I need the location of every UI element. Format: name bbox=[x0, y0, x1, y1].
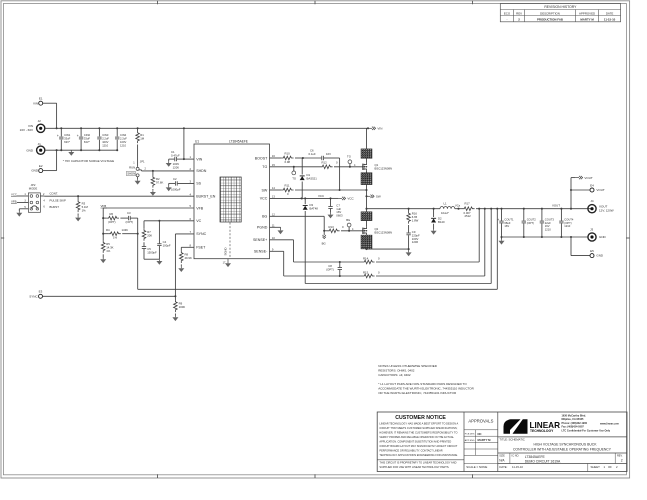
svg-text:100V: 100V bbox=[102, 140, 108, 144]
svg-text:MARTY M: MARTY M bbox=[478, 438, 492, 442]
svg-text:BSC123N08N: BSC123N08N bbox=[375, 231, 393, 235]
svg-text:E3: E3 bbox=[39, 289, 43, 293]
svg-text:14: 14 bbox=[272, 186, 275, 190]
svg-text:DATE:: DATE: bbox=[499, 465, 507, 469]
svg-text:J1: J1 bbox=[38, 142, 42, 146]
svg-text:16V - 60V: 16V - 60V bbox=[20, 128, 33, 132]
svg-text:BAT48: BAT48 bbox=[310, 206, 319, 210]
svg-text:PCB DES: PCB DES bbox=[465, 434, 475, 436]
svg-text:VCC: VCC bbox=[347, 197, 354, 201]
svg-text:R10: R10 bbox=[285, 152, 291, 156]
svg-text:13: 13 bbox=[272, 195, 275, 199]
svg-text:E5: E5 bbox=[590, 249, 594, 253]
svg-text:DESCRIPTION: DESCRIPTION bbox=[540, 11, 560, 15]
svg-text:1%: 1% bbox=[113, 236, 118, 240]
svg-text:J2: J2 bbox=[38, 119, 42, 123]
svg-text:www.linear.com: www.linear.com bbox=[600, 422, 620, 425]
svg-text:10: 10 bbox=[272, 236, 275, 240]
svg-text:(OPT): (OPT) bbox=[564, 221, 571, 225]
svg-text:E4: E4 bbox=[590, 183, 594, 187]
svg-text:B140: B140 bbox=[438, 220, 445, 224]
svg-text:BURST_EN: BURST_EN bbox=[196, 195, 216, 199]
svg-text:1%: 1% bbox=[82, 209, 87, 213]
svg-text:SW: SW bbox=[262, 188, 268, 192]
svg-text:APPROVED: APPROVED bbox=[579, 11, 595, 15]
svg-text:SCALE = NONE: SCALE = NONE bbox=[466, 465, 487, 469]
svg-text:C3: C3 bbox=[127, 211, 131, 215]
svg-text:63V*: 63V* bbox=[84, 140, 90, 144]
svg-text:ECO: ECO bbox=[504, 11, 511, 15]
svg-text:100V: 100V bbox=[120, 140, 126, 144]
svg-text:* 76V CAPACITOR SURGE VOLTAGE: * 76V CAPACITOR SURGE VOLTAGE bbox=[63, 159, 114, 163]
svg-text:2: 2 bbox=[621, 458, 623, 462]
svg-text:-: - bbox=[507, 18, 508, 22]
svg-text:1210: 1210 bbox=[564, 224, 570, 228]
svg-text:BG: BG bbox=[322, 242, 326, 246]
svg-text:GND: GND bbox=[26, 148, 34, 152]
svg-text:CIN1: CIN1 bbox=[64, 133, 71, 137]
svg-text:VIN: VIN bbox=[377, 127, 382, 131]
svg-text:VIN: VIN bbox=[196, 157, 202, 161]
svg-text:1%: 1% bbox=[106, 249, 111, 253]
svg-text:49.9K: 49.9K bbox=[185, 256, 192, 260]
svg-text:CUSTOMER NOTICE: CUSTOMER NOTICE bbox=[395, 415, 446, 421]
svg-text:N/A: N/A bbox=[499, 459, 505, 463]
svg-text:20K: 20K bbox=[147, 233, 152, 237]
svg-text:0603: 0603 bbox=[336, 214, 343, 218]
svg-text:R11: R11 bbox=[285, 184, 290, 188]
svg-text:HOWEVER, IT REMAINS THE CUSTOM: HOWEVER, IT REMAINS THE CUSTOMER'S RESPO… bbox=[379, 431, 457, 435]
svg-text:(OPT): (OPT) bbox=[126, 220, 134, 224]
svg-text:BG: BG bbox=[346, 218, 350, 222]
svg-text:VFB: VFB bbox=[196, 206, 204, 210]
svg-text:SENSE+: SENSE+ bbox=[253, 238, 267, 242]
svg-text:REV.: REV. bbox=[617, 454, 623, 457]
svg-text:Fax: (408)434-0507: Fax: (408)434-0507 bbox=[562, 425, 585, 428]
svg-text:1.8W: 1.8W bbox=[412, 218, 419, 222]
svg-text:33uF: 33uF bbox=[64, 137, 70, 141]
svg-text:0.47uF: 0.47uF bbox=[171, 153, 180, 157]
svg-text:BOOST: BOOST bbox=[255, 156, 268, 160]
svg-text:J3: J3 bbox=[590, 228, 594, 232]
svg-text:COUT1: COUT1 bbox=[504, 217, 514, 221]
svg-text:PRODUCTION FAB: PRODUCTION FAB bbox=[537, 18, 563, 22]
svg-text:VC: VC bbox=[196, 219, 201, 223]
svg-text:16V: 16V bbox=[326, 152, 331, 156]
svg-text:R6: R6 bbox=[110, 212, 114, 216]
svg-text:MARTY M: MARTY M bbox=[580, 18, 594, 22]
svg-text:1000pF: 1000pF bbox=[171, 188, 181, 192]
svg-text:FSET: FSET bbox=[196, 246, 206, 250]
svg-text:CIN2: CIN2 bbox=[84, 133, 91, 137]
svg-text:LT3845AEFE: LT3845AEFE bbox=[229, 139, 248, 143]
svg-text:CIN3: CIN3 bbox=[102, 133, 109, 137]
svg-text:0.1uF: 0.1uF bbox=[309, 152, 316, 156]
svg-text:VERIFY PROPER AND RELIABLE OPE: VERIFY PROPER AND RELIABLE OPERATION IN … bbox=[379, 435, 454, 439]
svg-text:JP1: JP1 bbox=[140, 160, 145, 164]
svg-text:11-15-10: 11-15-10 bbox=[604, 18, 616, 22]
svg-text:HIGH VOLTAGE SYNCHRONOUS BUCK: HIGH VOLTAGE SYNCHRONOUS BUCK bbox=[534, 443, 598, 447]
svg-text:APP ENG: APP ENG bbox=[465, 439, 475, 442]
svg-text:1206: 1206 bbox=[412, 240, 419, 244]
svg-text:SS: SS bbox=[196, 182, 201, 186]
svg-text:+: + bbox=[57, 134, 59, 138]
svg-text:11: 11 bbox=[272, 223, 275, 227]
svg-text:VCC: VCC bbox=[260, 197, 268, 201]
svg-text:63V*: 63V* bbox=[64, 140, 70, 144]
svg-text:U1: U1 bbox=[195, 139, 199, 143]
svg-text:11-15-10: 11-15-10 bbox=[512, 465, 523, 469]
svg-text:RESISTORS: OHMS, 0402: RESISTORS: OHMS, 0402 bbox=[378, 368, 415, 372]
svg-text:SHDN: SHDN bbox=[127, 172, 135, 176]
svg-text:100K: 100K bbox=[179, 305, 186, 309]
svg-text:1500pF: 1500pF bbox=[147, 250, 157, 254]
svg-text:TECHNOLOGY: TECHNOLOGY bbox=[530, 429, 554, 433]
svg-text:CAPACITORS: uF, 0402: CAPACITORS: uF, 0402 bbox=[378, 373, 411, 377]
svg-text:VOUT: VOUT bbox=[552, 204, 560, 208]
svg-text:SYNC: SYNC bbox=[196, 232, 206, 236]
svg-text:TECHNOLOGY APPLICATIONS ENGINE: TECHNOLOGY APPLICATIONS ENGINEERING FOR … bbox=[379, 453, 458, 457]
svg-text:2.2uF: 2.2uF bbox=[120, 137, 127, 141]
svg-text:REV: REV bbox=[516, 11, 522, 15]
svg-text:GND: GND bbox=[599, 235, 607, 239]
svg-text:THIS CIRCUIT IS PROPRIETARY TO: THIS CIRCUIT IS PROPRIETARY TO LINEAR TE… bbox=[379, 461, 456, 465]
svg-text:10uH*: 10uH* bbox=[441, 211, 450, 215]
svg-text:BURST: BURST bbox=[50, 205, 60, 209]
svg-text:LTC Confidential-For Customer: LTC Confidential-For Customer Use Only bbox=[562, 429, 611, 432]
svg-text:GND: GND bbox=[31, 169, 39, 173]
svg-text:MODE: MODE bbox=[29, 187, 38, 191]
svg-text:GND: GND bbox=[596, 254, 604, 258]
svg-text:VCC: VCC bbox=[318, 194, 324, 198]
svg-text:VFB: VFB bbox=[101, 204, 107, 208]
svg-text:143K: 143K bbox=[122, 228, 129, 232]
svg-text:SYNC: SYNC bbox=[29, 294, 38, 298]
svg-text:Phone: (408)432-1900: Phone: (408)432-1900 bbox=[562, 422, 588, 425]
svg-text:VOUT: VOUT bbox=[584, 176, 593, 180]
svg-text:BSC123N08N: BSC123N08N bbox=[375, 167, 393, 171]
svg-text:OF: OF bbox=[608, 465, 612, 469]
svg-text:ACCOMMODATE THE WURTH ELEKTRON: ACCOMMODATE THE WURTH ELEKTRONIC, 744355… bbox=[378, 387, 474, 391]
svg-text:REVISION HISTORY: REVISION HISTORY bbox=[544, 5, 577, 9]
svg-text:CIN4: CIN4 bbox=[120, 133, 127, 137]
svg-text:12V, 120W: 12V, 120W bbox=[599, 208, 614, 212]
svg-text:SUPPLIED FOR USE WITH LINEAR T: SUPPLIED FOR USE WITH LINEAR TECHNOLOGY … bbox=[379, 465, 449, 469]
svg-text:IC NO.: IC NO. bbox=[512, 454, 520, 457]
svg-text:VFB: VFB bbox=[11, 199, 17, 203]
svg-text:LINEAR TECHNOLOGY HAS MADE A B: LINEAR TECHNOLOGY HAS MADE A BEST EFFORT… bbox=[379, 422, 458, 426]
svg-text:APPLICATION. COMPONENT SUBSTIT: APPLICATION. COMPONENT SUBSTITUTION AND … bbox=[379, 439, 451, 443]
svg-text:TG: TG bbox=[292, 176, 296, 180]
svg-text:15: 15 bbox=[272, 163, 275, 167]
svg-text:BG: BG bbox=[262, 215, 267, 219]
svg-text:68uF: 68uF bbox=[504, 221, 510, 225]
svg-text:PERFORMANCE OR RELIABILITY. CO: PERFORMANCE OR RELIABILITY. CONTACT LINE… bbox=[379, 448, 442, 452]
svg-text:1M: 1M bbox=[140, 137, 145, 141]
svg-text:BAS521: BAS521 bbox=[307, 177, 318, 181]
svg-text:C2: C2 bbox=[173, 177, 177, 181]
svg-text:NC: NC bbox=[478, 432, 482, 436]
svg-text:Milpitas, CA 95035: Milpitas, CA 95035 bbox=[562, 418, 584, 421]
svg-text:* L1 LAYOUT PADS ARE NON-STAND: * L1 LAYOUT PADS ARE NON-STANDARD PADS D… bbox=[378, 382, 467, 386]
svg-text:APPROVALS: APPROVALS bbox=[468, 418, 493, 423]
svg-text:1206: 1206 bbox=[173, 166, 180, 170]
svg-text:16: 16 bbox=[272, 154, 275, 158]
svg-text:12: 12 bbox=[272, 212, 275, 216]
svg-text:VIN: VIN bbox=[33, 101, 38, 105]
svg-text:PULSE SKIP: PULSE SKIP bbox=[50, 199, 66, 203]
svg-text:R14: R14 bbox=[363, 256, 369, 260]
svg-text:(OPT): (OPT) bbox=[527, 221, 534, 225]
svg-text:VCa: VCa bbox=[455, 204, 461, 208]
svg-text:SIZE: SIZE bbox=[499, 454, 505, 457]
svg-text:TITLE: SCHEMATIC: TITLE: SCHEMATIC bbox=[499, 438, 524, 442]
svg-text:SHEET: SHEET bbox=[591, 465, 601, 469]
svg-text:E2: E2 bbox=[39, 164, 43, 168]
svg-text:J4: J4 bbox=[590, 199, 594, 203]
svg-text:97.6K: 97.6K bbox=[156, 181, 163, 185]
svg-text:DATE: DATE bbox=[606, 11, 614, 15]
svg-text:R4: R4 bbox=[106, 228, 110, 232]
svg-text:VCC: VCC bbox=[11, 192, 17, 196]
svg-text:100pF: 100pF bbox=[163, 243, 171, 247]
svg-text:LT3845AEFE: LT3845AEFE bbox=[525, 455, 546, 459]
svg-text:2512: 2512 bbox=[465, 214, 472, 218]
svg-text:DEMO CIRCUIT 1619A: DEMO CIRCUIT 1619A bbox=[525, 460, 561, 464]
svg-text:COUT2: COUT2 bbox=[527, 217, 537, 221]
svg-text:R12: R12 bbox=[322, 160, 328, 164]
svg-text:R15: R15 bbox=[363, 270, 369, 274]
svg-text:33uF: 33uF bbox=[84, 137, 90, 141]
svg-text:E1: E1 bbox=[39, 97, 43, 101]
svg-text:VOUT: VOUT bbox=[596, 188, 605, 192]
svg-text:SHDN: SHDN bbox=[196, 169, 207, 173]
svg-text:R13: R13 bbox=[329, 225, 335, 229]
svg-text:+: + bbox=[497, 218, 499, 222]
svg-text:COUT3: COUT3 bbox=[545, 217, 555, 221]
svg-text:SGND: SGND bbox=[224, 247, 228, 255]
svg-text:(OPT): (OPT) bbox=[108, 220, 116, 224]
svg-text:1630 McCarthy Blvd.: 1630 McCarthy Blvd. bbox=[562, 415, 587, 418]
svg-text:SENSE-: SENSE- bbox=[254, 250, 268, 254]
svg-text:1210: 1210 bbox=[120, 143, 126, 147]
svg-text:TG: TG bbox=[262, 165, 267, 169]
svg-text:1210: 1210 bbox=[545, 228, 551, 232]
svg-text:16V: 16V bbox=[504, 224, 509, 228]
svg-text:COUT4: COUT4 bbox=[564, 217, 574, 221]
svg-text:16V: 16V bbox=[545, 224, 550, 228]
svg-text:CIRCUIT BOARD LAYOUT MAY SIGNI: CIRCUIT BOARD LAYOUT MAY SIGNIFICANTLY A… bbox=[379, 444, 457, 448]
svg-text:2.2uF: 2.2uF bbox=[102, 137, 109, 141]
svg-text:NOTES UNLESS OTHERWISE SPECIFI: NOTES UNLESS OTHERWISE SPECIFIED bbox=[378, 364, 438, 368]
svg-text:6.98: 6.98 bbox=[285, 160, 291, 164]
svg-text:TG: TG bbox=[347, 155, 351, 159]
svg-text:+: + bbox=[77, 134, 79, 138]
svg-text:RUN: RUN bbox=[129, 165, 135, 169]
svg-text:CONT.: CONT. bbox=[50, 191, 59, 195]
svg-text:OR THE WURTH ELEKTRONIC, 74435: OR THE WURTH ELEKTRONIC, 7443551101 INDU… bbox=[378, 391, 457, 395]
svg-text:L1: L1 bbox=[444, 201, 448, 205]
svg-text:CONTROLLER WITH ADJUSTABLE OPE: CONTROLLER WITH ADJUSTABLE OPERATING FRE… bbox=[513, 447, 612, 451]
svg-text:SW: SW bbox=[376, 195, 381, 199]
svg-text:PGND: PGND bbox=[257, 226, 268, 230]
svg-text:22uF: 22uF bbox=[545, 221, 551, 225]
svg-text:1210: 1210 bbox=[102, 143, 108, 147]
svg-text:CIRCUIT THAT MEETS CUSTOMER-SU: CIRCUIT THAT MEETS CUSTOMER-SUPPLIED SPE… bbox=[379, 426, 457, 430]
svg-text:(OPT): (OPT) bbox=[326, 268, 334, 272]
svg-text:R17: R17 bbox=[465, 202, 471, 206]
